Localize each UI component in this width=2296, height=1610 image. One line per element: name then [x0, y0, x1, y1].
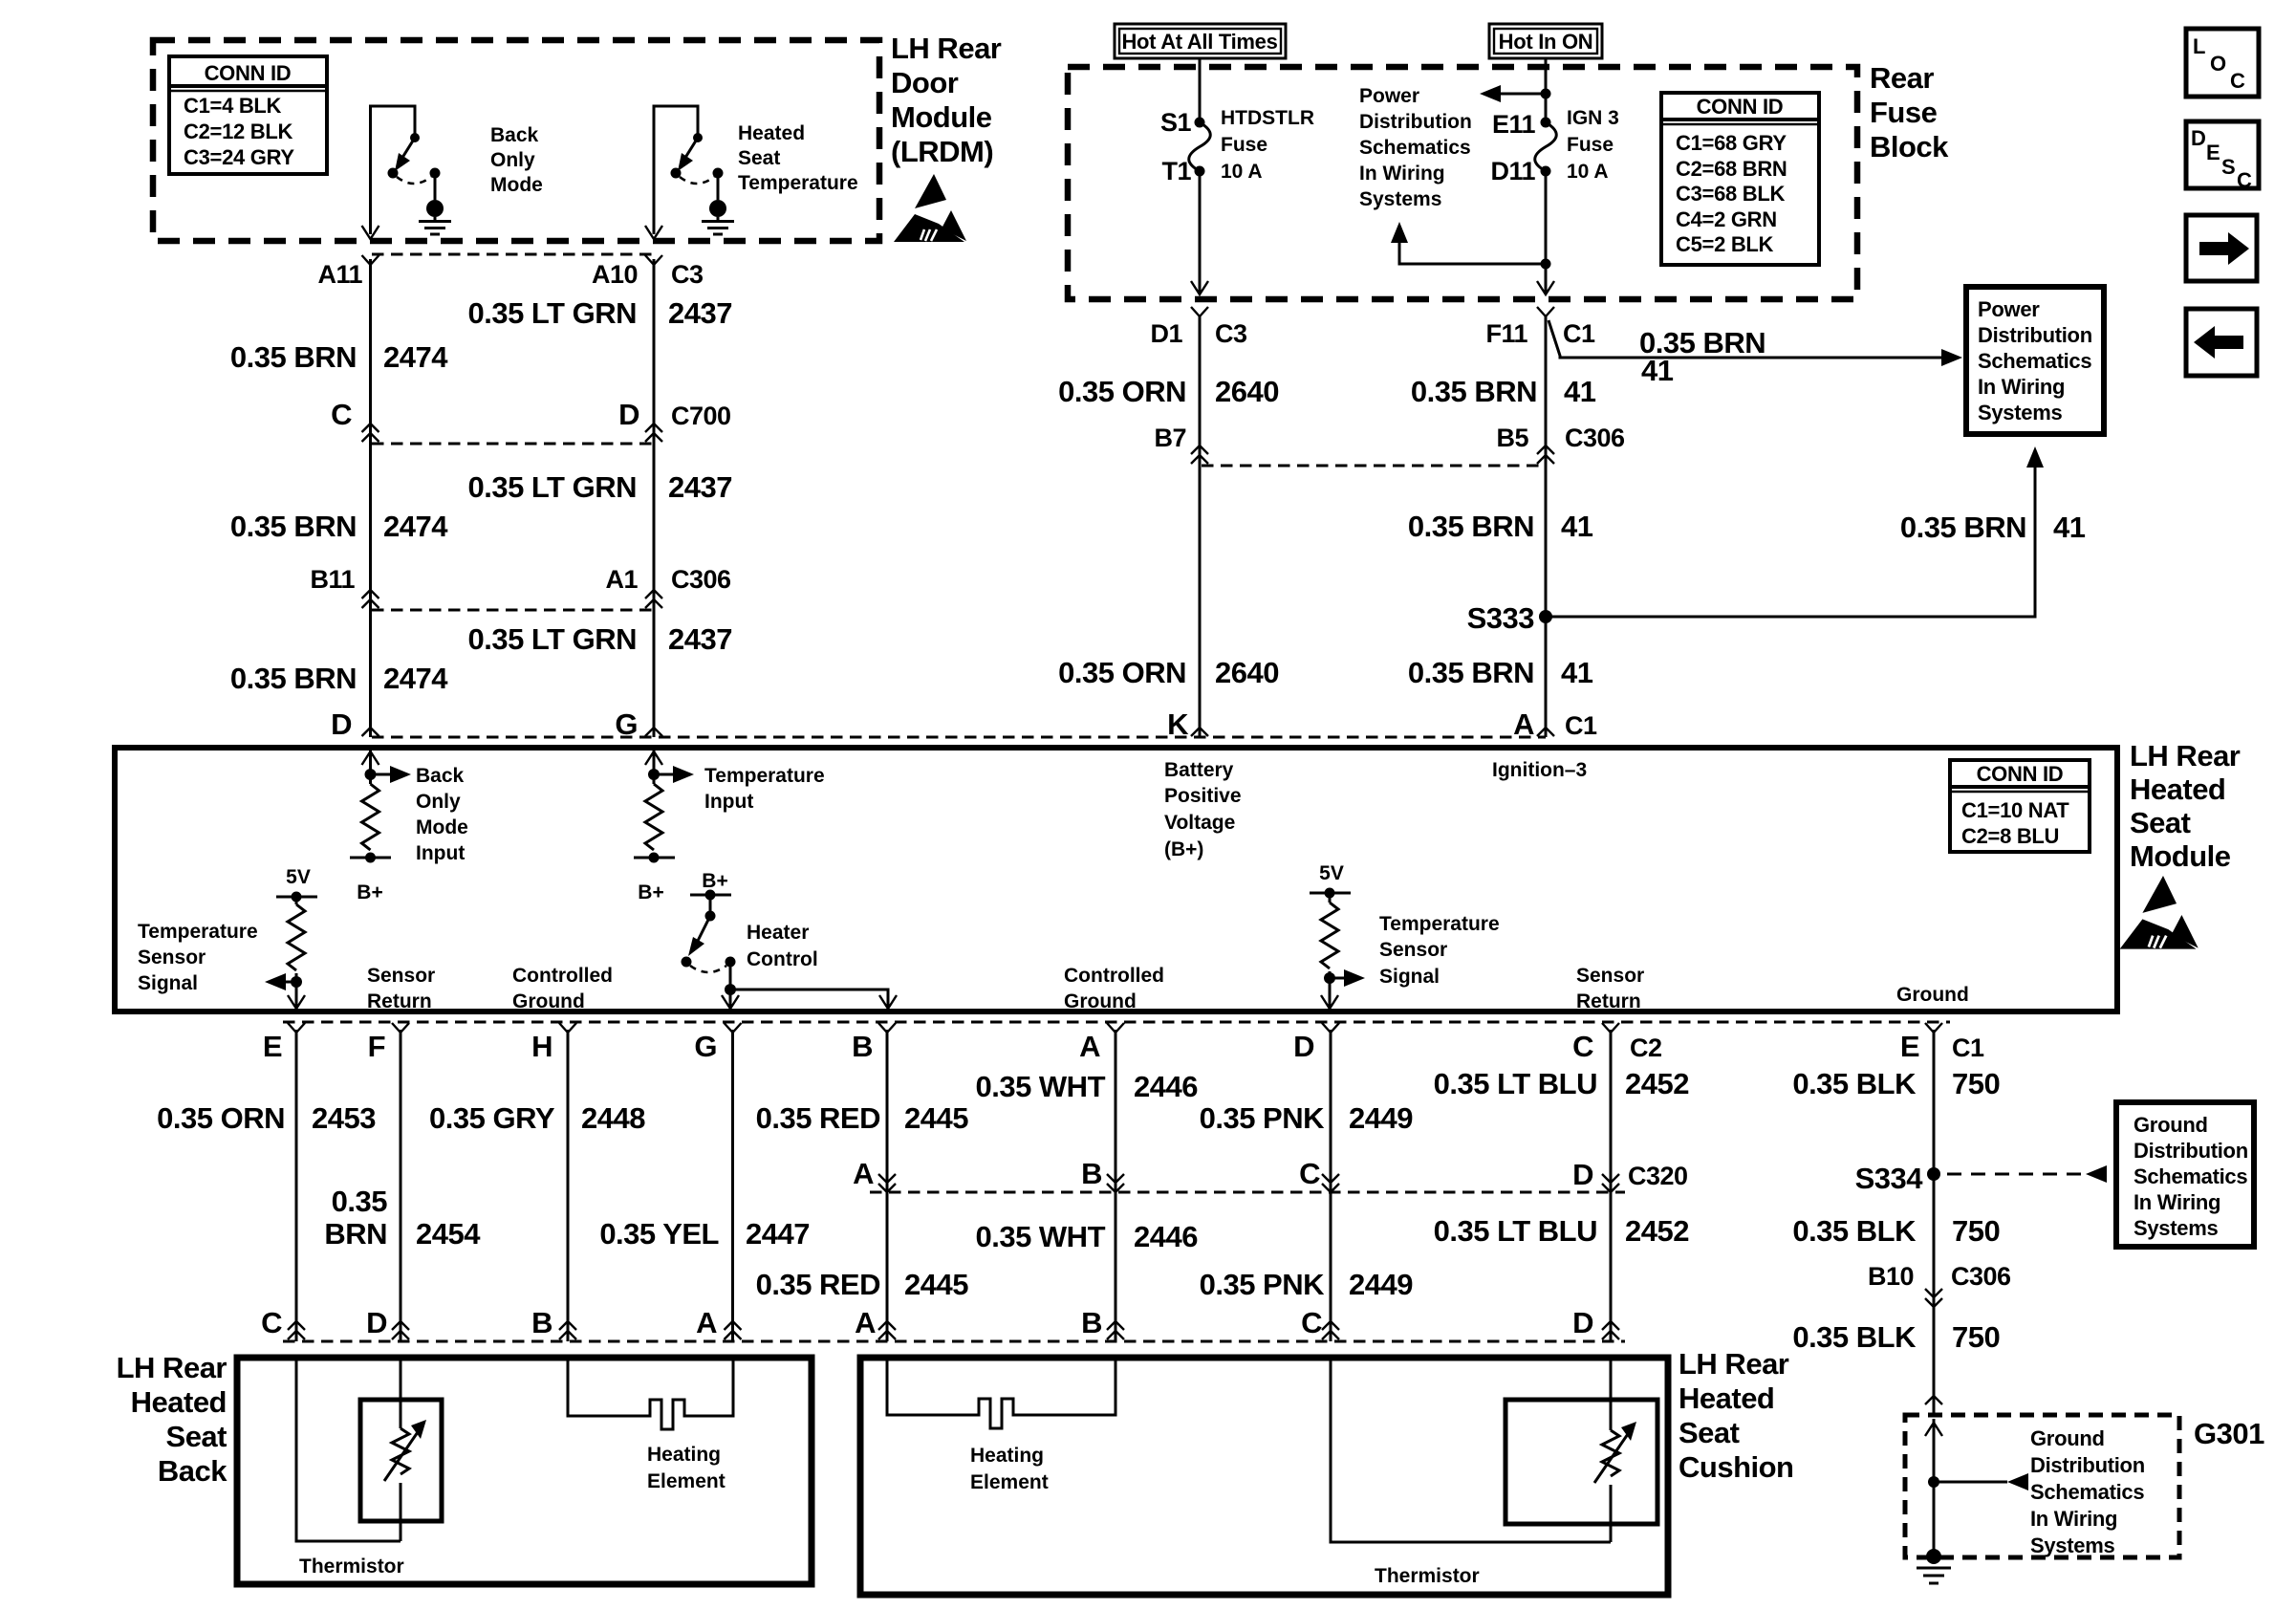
svg-text:0.35 GRY: 0.35 GRY — [429, 1101, 555, 1135]
svg-text:0.35 PNK: 0.35 PNK — [1200, 1101, 1326, 1135]
svg-text:S: S — [2221, 155, 2235, 179]
svg-text:0.35 BRN: 0.35 BRN — [1411, 375, 1537, 408]
svg-text:Heater: Heater — [747, 922, 809, 944]
svg-text:C1: C1 — [1565, 711, 1597, 740]
svg-text:2437: 2437 — [668, 470, 732, 504]
svg-text:C2=68 BRN: C2=68 BRN — [1676, 157, 1787, 181]
svg-text:0.35 LT GRN: 0.35 LT GRN — [467, 296, 637, 330]
svg-text:F: F — [368, 1030, 385, 1063]
svg-text:Signal: Signal — [1379, 966, 1440, 988]
svg-text:B11: B11 — [310, 565, 355, 594]
svg-text:C: C — [331, 398, 352, 431]
svg-text:0.35 BRN: 0.35 BRN — [230, 662, 357, 695]
svg-text:2474: 2474 — [383, 662, 448, 695]
svg-text:Only: Only — [490, 149, 535, 171]
svg-text:B7: B7 — [1154, 424, 1186, 452]
svg-text:C3: C3 — [671, 260, 704, 289]
svg-text:0.35 YEL: 0.35 YEL — [599, 1217, 719, 1251]
svg-text:2437: 2437 — [668, 296, 732, 330]
svg-text:C: C — [1299, 1157, 1320, 1190]
svg-text:Systems: Systems — [2134, 1216, 2218, 1240]
svg-text:Fuse: Fuse — [1221, 134, 1267, 156]
svg-text:Input: Input — [416, 842, 465, 864]
svg-text:0.35 BRN: 0.35 BRN — [230, 340, 357, 374]
svg-text:Controlled: Controlled — [512, 965, 613, 987]
svg-text:Return: Return — [1576, 990, 1641, 1012]
svg-text:B: B — [1081, 1306, 1102, 1339]
svg-text:A: A — [1513, 707, 1534, 741]
svg-text:Back: Back — [416, 765, 465, 787]
svg-text:(LRDM): (LRDM) — [891, 135, 993, 168]
svg-text:0.35 BLK: 0.35 BLK — [1792, 1320, 1917, 1354]
svg-text:C2=8 BLU: C2=8 BLU — [1961, 824, 2059, 848]
svg-text:2640: 2640 — [1215, 656, 1279, 689]
svg-text:Input: Input — [704, 791, 753, 813]
svg-text:C1=4 BLK: C1=4 BLK — [184, 94, 282, 118]
svg-text:Mode: Mode — [416, 816, 468, 838]
svg-text:D: D — [366, 1306, 387, 1339]
svg-text:Temperature: Temperature — [138, 921, 258, 943]
svg-text:Ignition–3: Ignition–3 — [1492, 759, 1587, 781]
svg-text:41: 41 — [2053, 511, 2086, 544]
svg-text:G301: G301 — [2194, 1417, 2264, 1450]
svg-text:0.35 ORN: 0.35 ORN — [1058, 375, 1186, 408]
svg-text:Distribution: Distribution — [2134, 1139, 2248, 1163]
svg-text:B5: B5 — [1496, 424, 1528, 452]
svg-text:Mode: Mode — [490, 174, 543, 196]
svg-text:C306: C306 — [1951, 1262, 2011, 1291]
svg-text:B+: B+ — [638, 881, 663, 903]
svg-text:D: D — [1293, 1030, 1314, 1063]
svg-text:Ground: Ground — [1896, 984, 1969, 1006]
svg-text:Power: Power — [1359, 85, 1419, 107]
svg-text:A10: A10 — [592, 260, 638, 289]
svg-text:(B+): (B+) — [1164, 838, 1203, 860]
svg-text:S1: S1 — [1160, 108, 1192, 137]
svg-text:LH Rear: LH Rear — [2130, 739, 2241, 772]
svg-text:Distribution: Distribution — [1359, 111, 1472, 133]
svg-text:C5=2 BLK: C5=2 BLK — [1676, 232, 1774, 256]
svg-text:Module: Module — [2130, 839, 2231, 873]
svg-text:E: E — [2206, 141, 2220, 164]
svg-text:750: 750 — [1952, 1214, 2000, 1248]
svg-text:D11: D11 — [1490, 157, 1535, 185]
svg-text:C306: C306 — [1565, 424, 1625, 452]
svg-text:C1: C1 — [1563, 319, 1595, 348]
svg-text:Schematics: Schematics — [2134, 1164, 2247, 1188]
svg-text:C2: C2 — [1630, 1033, 1662, 1062]
svg-text:0.35 WHT: 0.35 WHT — [975, 1220, 1105, 1253]
svg-text:B: B — [1081, 1157, 1102, 1190]
svg-text:C2=12 BLK: C2=12 BLK — [184, 120, 292, 143]
svg-text:Positive: Positive — [1164, 785, 1242, 807]
svg-text:2453: 2453 — [312, 1101, 376, 1135]
svg-text:S333: S333 — [1467, 601, 1535, 635]
svg-text:2445: 2445 — [904, 1101, 968, 1135]
svg-text:Module: Module — [891, 100, 992, 134]
svg-text:2449: 2449 — [1349, 1268, 1413, 1301]
svg-text:5V: 5V — [286, 866, 311, 888]
svg-text:0.35 LT BLU: 0.35 LT BLU — [1434, 1067, 1597, 1100]
svg-text:Back: Back — [158, 1454, 227, 1488]
svg-text:Control: Control — [747, 948, 818, 970]
svg-text:Schematics: Schematics — [2030, 1480, 2144, 1504]
svg-text:Thermistor: Thermistor — [1375, 1565, 1480, 1587]
svg-text:Temperature: Temperature — [1379, 913, 1500, 935]
svg-text:0.35 LT BLU: 0.35 LT BLU — [1434, 1214, 1597, 1248]
svg-text:2474: 2474 — [383, 510, 448, 543]
svg-text:C1=68 GRY: C1=68 GRY — [1676, 131, 1787, 155]
svg-text:Distribution: Distribution — [1978, 323, 2092, 347]
svg-text:2454: 2454 — [416, 1217, 481, 1251]
svg-text:2449: 2449 — [1349, 1101, 1413, 1135]
svg-text:A: A — [696, 1306, 717, 1339]
svg-text:CONN ID: CONN ID — [1977, 762, 2064, 786]
svg-text:Distribution: Distribution — [2030, 1453, 2145, 1477]
svg-text:C: C — [1301, 1306, 1322, 1339]
svg-text:Heated: Heated — [738, 122, 805, 144]
svg-text:Block: Block — [1870, 130, 1949, 163]
svg-text:10 A: 10 A — [1221, 161, 1263, 183]
svg-text:D: D — [2191, 126, 2206, 150]
svg-text:CONN ID: CONN ID — [1697, 95, 1784, 119]
svg-text:41: 41 — [1561, 656, 1593, 689]
svg-text:Cushion: Cushion — [1679, 1450, 1794, 1484]
svg-text:G: G — [694, 1030, 717, 1063]
svg-text:Sensor: Sensor — [138, 946, 206, 968]
svg-text:0.35 BLK: 0.35 BLK — [1792, 1214, 1917, 1248]
svg-text:C: C — [261, 1306, 282, 1339]
svg-text:750: 750 — [1952, 1067, 2000, 1100]
svg-text:L: L — [2193, 34, 2205, 58]
svg-text:C3=68 BLK: C3=68 BLK — [1676, 182, 1785, 206]
svg-text:Seat: Seat — [738, 147, 780, 169]
svg-text:Signal: Signal — [138, 972, 198, 994]
svg-text:HTDSTLR: HTDSTLR — [1221, 107, 1314, 129]
svg-text:H: H — [531, 1030, 552, 1063]
svg-text:C4=2 GRN: C4=2 GRN — [1676, 207, 1777, 231]
svg-text:A11: A11 — [317, 260, 362, 289]
svg-text:0.35 BLK: 0.35 BLK — [1792, 1067, 1917, 1100]
svg-text:Ground: Ground — [2030, 1426, 2105, 1450]
svg-text:E11: E11 — [1492, 110, 1536, 139]
svg-text:B: B — [531, 1306, 552, 1339]
svg-text:0.35 ORN: 0.35 ORN — [1058, 656, 1186, 689]
svg-text:O: O — [2210, 52, 2226, 76]
svg-text:Thermistor: Thermistor — [299, 1556, 404, 1577]
svg-text:Power: Power — [1978, 297, 2040, 321]
svg-text:D: D — [331, 707, 352, 741]
svg-text:Schematics: Schematics — [1978, 349, 2091, 373]
svg-text:Seat: Seat — [1679, 1416, 1740, 1449]
svg-text:41: 41 — [1561, 510, 1593, 543]
svg-text:In Wiring: In Wiring — [2134, 1190, 2220, 1214]
svg-text:0.35 ORN: 0.35 ORN — [157, 1101, 285, 1135]
svg-text:T1: T1 — [1161, 157, 1191, 185]
svg-text:2452: 2452 — [1625, 1067, 1689, 1100]
svg-text:Temperature: Temperature — [738, 172, 858, 194]
svg-text:Sensor: Sensor — [1379, 939, 1447, 961]
svg-text:LH Rear: LH Rear — [117, 1351, 227, 1384]
svg-text:0.35: 0.35 — [332, 1185, 388, 1218]
svg-text:Door: Door — [891, 66, 959, 99]
svg-text:0.35 RED: 0.35 RED — [756, 1101, 881, 1135]
svg-text:0.35 BRN: 0.35 BRN — [230, 510, 357, 543]
svg-text:B: B — [852, 1030, 873, 1063]
svg-text:41: 41 — [1641, 354, 1674, 387]
svg-text:2448: 2448 — [581, 1101, 645, 1135]
svg-text:Voltage: Voltage — [1164, 812, 1235, 834]
svg-text:Hot In ON: Hot In ON — [1499, 30, 1593, 54]
svg-text:5V: 5V — [1319, 862, 1344, 884]
svg-text:A: A — [855, 1306, 876, 1339]
svg-text:0.35 BRN: 0.35 BRN — [1900, 511, 2026, 544]
svg-text:C: C — [2237, 168, 2252, 192]
svg-text:Seat: Seat — [2130, 806, 2191, 839]
svg-text:LH Rear: LH Rear — [891, 32, 1002, 65]
svg-text:0.35 LT GRN: 0.35 LT GRN — [467, 622, 637, 656]
svg-text:2474: 2474 — [383, 340, 448, 374]
svg-text:Battery: Battery — [1164, 759, 1234, 781]
svg-text:2445: 2445 — [904, 1268, 968, 1301]
svg-text:In Wiring: In Wiring — [1359, 163, 1445, 185]
svg-text:Heated: Heated — [131, 1385, 227, 1419]
svg-text:Heating: Heating — [970, 1445, 1044, 1467]
svg-text:Temperature: Temperature — [704, 765, 825, 787]
svg-text:K: K — [1167, 707, 1189, 741]
svg-text:Fuse: Fuse — [1870, 96, 1938, 129]
svg-text:Heated: Heated — [1679, 1382, 1774, 1415]
svg-text:0.35 RED: 0.35 RED — [756, 1268, 881, 1301]
svg-text:In Wiring: In Wiring — [2030, 1507, 2117, 1531]
svg-text:C320: C320 — [1628, 1162, 1688, 1190]
svg-text:A1: A1 — [605, 565, 638, 594]
svg-text:C: C — [2230, 69, 2245, 93]
svg-text:C306: C306 — [671, 565, 731, 594]
svg-text:Return: Return — [367, 990, 432, 1012]
svg-text:C3: C3 — [1215, 319, 1247, 348]
svg-text:Fuse: Fuse — [1567, 134, 1614, 156]
svg-text:2447: 2447 — [746, 1217, 810, 1251]
svg-text:Sensor: Sensor — [367, 965, 435, 987]
svg-text:IGN 3: IGN 3 — [1567, 107, 1619, 129]
svg-text:Sensor: Sensor — [1576, 965, 1644, 987]
svg-text:2640: 2640 — [1215, 375, 1279, 408]
svg-text:Back: Back — [490, 124, 539, 146]
svg-text:B10: B10 — [1868, 1262, 1914, 1291]
svg-text:41: 41 — [1564, 375, 1596, 408]
svg-text:0.35 WHT: 0.35 WHT — [975, 1070, 1105, 1103]
svg-text:C3=24 GRY: C3=24 GRY — [184, 145, 294, 169]
svg-text:Systems: Systems — [2030, 1534, 2114, 1557]
svg-text:D: D — [1572, 1306, 1593, 1339]
svg-text:Systems: Systems — [1978, 401, 2062, 424]
svg-text:0.35 BRN: 0.35 BRN — [1408, 510, 1534, 543]
svg-text:0.35 BRN: 0.35 BRN — [1408, 656, 1534, 689]
svg-text:E: E — [263, 1030, 282, 1063]
svg-text:LH Rear: LH Rear — [1679, 1347, 1789, 1381]
svg-text:D1: D1 — [1150, 319, 1182, 348]
svg-text:750: 750 — [1952, 1320, 2000, 1354]
svg-text:B+: B+ — [357, 881, 382, 903]
svg-text:2446: 2446 — [1134, 1070, 1198, 1103]
svg-text:Heated: Heated — [2130, 772, 2225, 806]
svg-text:A: A — [853, 1157, 874, 1190]
svg-text:D: D — [1572, 1158, 1593, 1191]
svg-text:E: E — [1900, 1030, 1919, 1063]
svg-text:2452: 2452 — [1625, 1214, 1689, 1248]
svg-text:S334: S334 — [1855, 1162, 1924, 1195]
svg-text:CONN ID: CONN ID — [205, 61, 292, 85]
svg-text:In Wiring: In Wiring — [1978, 375, 2065, 399]
svg-text:C: C — [1572, 1030, 1593, 1063]
svg-text:Heating: Heating — [647, 1444, 721, 1466]
svg-text:D: D — [618, 398, 639, 431]
svg-text:B+: B+ — [702, 870, 727, 892]
svg-text:C1: C1 — [1952, 1033, 1984, 1062]
svg-text:C700: C700 — [671, 402, 731, 430]
svg-text:Seat: Seat — [166, 1420, 227, 1453]
svg-text:C1=10 NAT: C1=10 NAT — [1961, 798, 2069, 822]
svg-text:2446: 2446 — [1134, 1220, 1198, 1253]
svg-text:Schematics: Schematics — [1359, 137, 1471, 159]
svg-text:10 A: 10 A — [1567, 161, 1609, 183]
svg-text:0.35 PNK: 0.35 PNK — [1200, 1268, 1326, 1301]
svg-text:Ground: Ground — [2134, 1113, 2208, 1137]
svg-text:F11: F11 — [1485, 319, 1527, 348]
svg-text:Element: Element — [970, 1471, 1049, 1493]
svg-text:2437: 2437 — [668, 622, 732, 656]
svg-text:0.35 LT GRN: 0.35 LT GRN — [467, 470, 637, 504]
svg-text:BRN: BRN — [324, 1217, 387, 1251]
svg-text:Ground: Ground — [1064, 990, 1137, 1012]
svg-text:A: A — [1079, 1030, 1100, 1063]
svg-text:Controlled: Controlled — [1064, 965, 1164, 987]
svg-text:Ground: Ground — [512, 990, 585, 1012]
svg-text:Rear: Rear — [1870, 61, 1934, 95]
svg-text:Systems: Systems — [1359, 188, 1441, 210]
svg-text:Element: Element — [647, 1470, 726, 1492]
svg-text:Only: Only — [416, 791, 461, 813]
svg-text:Hot At All Times: Hot At All Times — [1121, 30, 1277, 54]
